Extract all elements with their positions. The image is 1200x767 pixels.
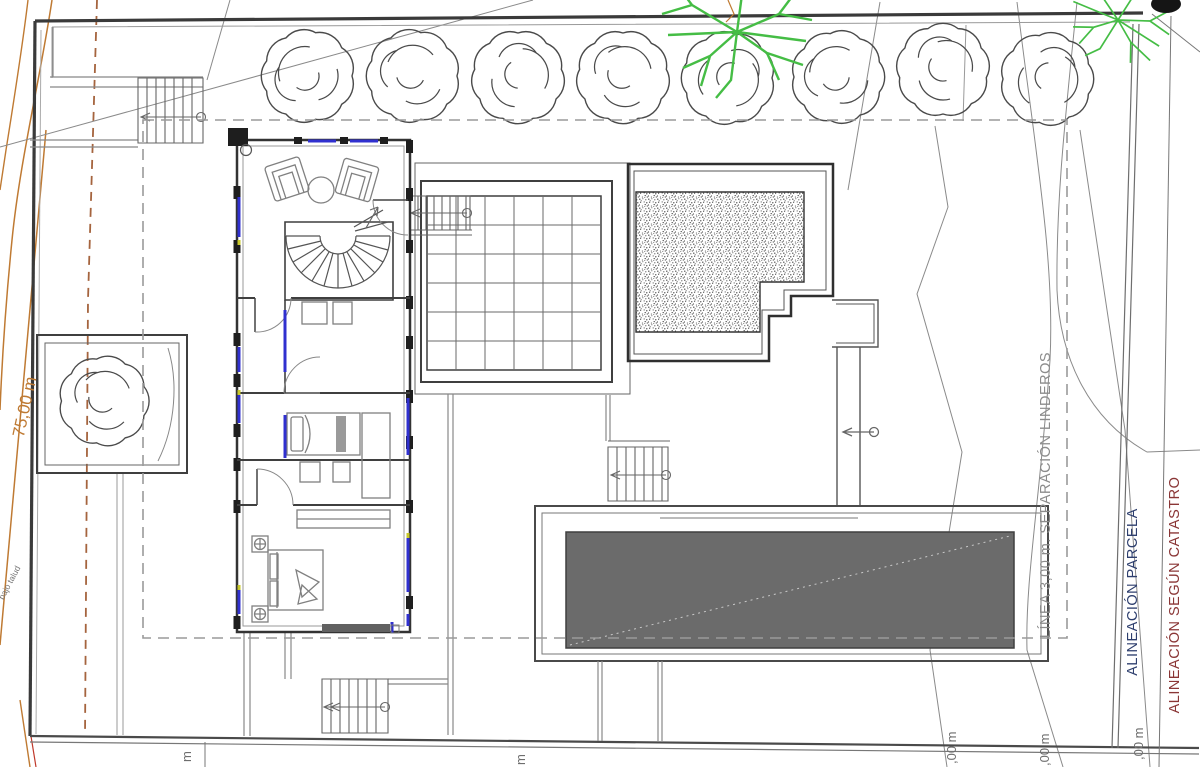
sill-marks: [239, 240, 408, 590]
stairs-northwest: [138, 78, 206, 143]
interior-walls: [237, 298, 410, 505]
double-bed: [268, 550, 323, 610]
terrain-contours-left: [0, 0, 97, 767]
bottom-dim-1: ,00 m: [944, 731, 959, 764]
walkway: [832, 300, 878, 505]
slope-note-label: bajo talud: [0, 564, 23, 601]
bathroom-vanity: [302, 302, 352, 324]
hall-closets: [300, 462, 350, 482]
wardrobe-column: [362, 413, 390, 498]
deciduous-tree-icon: [347, 10, 477, 140]
tiled-patio: [415, 163, 630, 394]
cadastre-alignment-label: ALINEACIÓN SEGÚN CATASTRO: [1166, 477, 1183, 714]
terrain-survey-lines: [0, 0, 1200, 767]
pool-water: [566, 532, 1014, 648]
single-bed: [287, 413, 360, 455]
armchair: [264, 156, 309, 201]
deciduous-tree-icon: [778, 17, 896, 136]
bottom-meter-1: m: [179, 751, 194, 762]
bottom-dim-3: ,00 m: [1131, 727, 1146, 760]
stairs-south: [322, 679, 390, 733]
setback-line-label: LÍNEA 3,00 m. SEPARACIÓN LINDEROS: [1037, 352, 1054, 638]
deciduous-tree-icon: [261, 30, 353, 123]
deciduous-tree-icon: [459, 17, 578, 135]
deciduous-tree-icon: [897, 23, 990, 115]
parcel-alignment-label: ALINEACIÓN PARCELA: [1124, 508, 1141, 675]
coffee-table: [308, 177, 334, 203]
boundary-brown-dashed-line: [85, 0, 97, 737]
deciduous-tree-icon: [982, 13, 1112, 143]
planter-tree-icon: [43, 340, 165, 462]
armchair: [335, 158, 380, 203]
planter-box: [37, 335, 187, 473]
spiral-staircase: [286, 207, 390, 288]
master-wardrobe: [297, 510, 390, 528]
site-plan-drawing: 75,00 m bajo talud LÍNEA 3,00 m. SEPARAC…: [0, 0, 1200, 767]
deciduous-tree-icon: [563, 17, 682, 135]
bottom-meter-2: m: [513, 754, 528, 765]
stairs-entry: [410, 196, 472, 235]
gravel-terrace: [628, 164, 833, 361]
dark-marker: [1151, 0, 1181, 13]
south-sill: [322, 624, 390, 632]
nightstand-lamp-icon: [252, 536, 268, 622]
bottom-dim-2: ,00 m: [1037, 733, 1052, 766]
stairs-pool: [608, 441, 671, 501]
building: [228, 128, 413, 633]
furniture: [252, 156, 390, 622]
walkway-direction-arrow-icon: [843, 428, 879, 437]
left-dimension-label: 75,00 m: [9, 375, 40, 439]
plan-svg: 75,00 m bajo talud LÍNEA 3,00 m. SEPARAC…: [0, 0, 1200, 767]
